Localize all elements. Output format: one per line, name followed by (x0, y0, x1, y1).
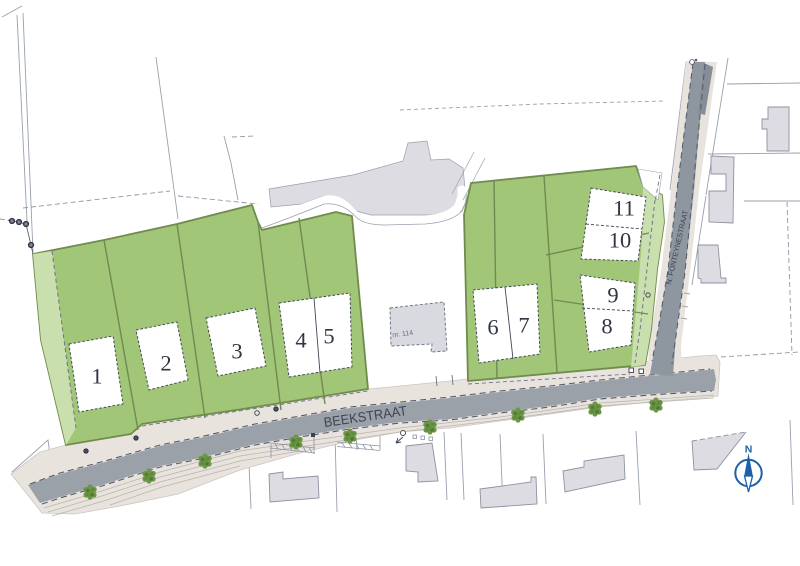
svg-text:4: 4 (295, 328, 306, 353)
svg-text:3: 3 (231, 339, 242, 364)
svg-text:10: 10 (609, 228, 632, 253)
svg-text:11: 11 (613, 196, 635, 221)
svg-text:5: 5 (323, 324, 334, 349)
svg-text:N: N (745, 444, 753, 456)
svg-text:9: 9 (607, 283, 618, 308)
svg-text:8: 8 (601, 314, 612, 339)
svg-text:1: 1 (91, 364, 102, 389)
svg-text:6: 6 (487, 315, 498, 340)
svg-text:2: 2 (160, 351, 171, 376)
svg-text:7: 7 (518, 313, 529, 338)
